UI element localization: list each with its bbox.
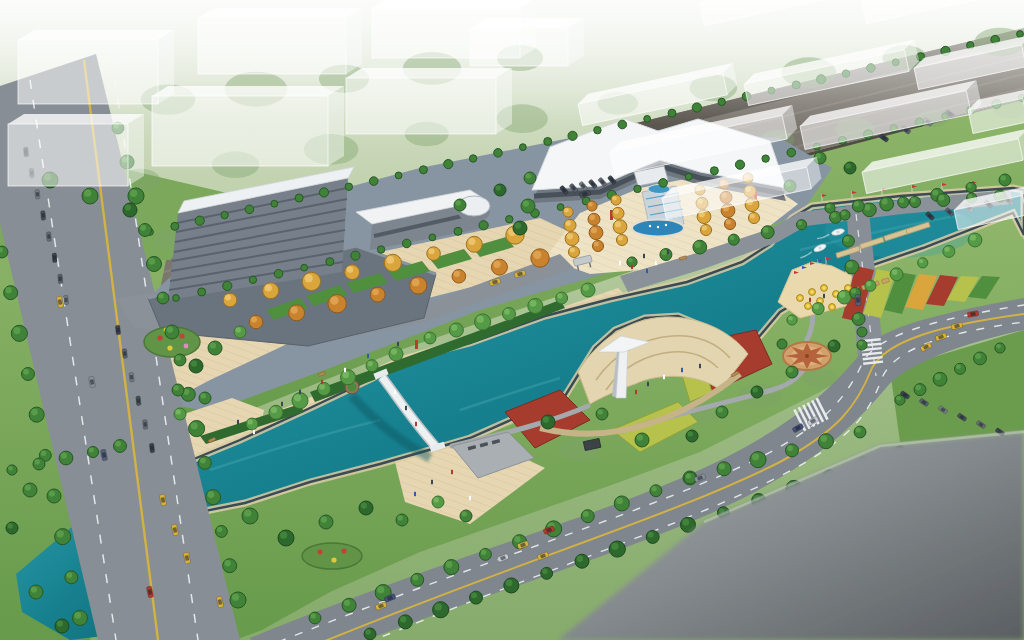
person — [823, 294, 825, 298]
tree — [326, 258, 334, 266]
person — [655, 261, 657, 265]
tree-highlight — [366, 629, 371, 634]
tree — [4, 286, 18, 300]
tree-highlight — [462, 511, 467, 516]
ghost-building — [18, 30, 174, 104]
tree — [581, 510, 594, 523]
tree — [596, 408, 608, 420]
tree-highlight — [944, 247, 949, 252]
car — [855, 294, 861, 305]
tree — [845, 260, 859, 274]
tree-highlight — [217, 527, 222, 532]
tree — [292, 393, 308, 409]
tree — [114, 440, 127, 453]
umbrella-pole — [831, 306, 833, 308]
ghost-roof — [8, 114, 144, 124]
tree — [735, 160, 744, 169]
tree — [309, 612, 321, 624]
tree-highlight — [841, 211, 846, 216]
tree-highlight — [967, 183, 972, 188]
tree-highlight — [718, 407, 723, 412]
tree-highlight — [57, 530, 64, 537]
tree-highlight — [391, 348, 397, 354]
tree — [424, 332, 436, 344]
tree-highlight — [426, 333, 431, 338]
tree — [234, 326, 246, 338]
tree — [568, 246, 579, 257]
car — [46, 232, 51, 242]
tree-highlight — [89, 448, 94, 453]
car — [35, 189, 40, 199]
tree-highlight — [140, 225, 146, 231]
tree — [503, 308, 516, 321]
tree-highlight — [557, 293, 562, 298]
tree — [263, 283, 279, 299]
tree — [6, 522, 18, 534]
person — [281, 402, 283, 406]
tree — [230, 592, 246, 608]
tree — [718, 98, 725, 105]
tree-highlight — [167, 326, 173, 332]
tree-highlight — [591, 227, 597, 233]
tree — [7, 465, 17, 475]
tree — [918, 258, 928, 268]
tree-highlight — [533, 251, 541, 259]
tree-highlight — [347, 266, 354, 273]
tree-highlight — [611, 543, 618, 550]
tree — [402, 239, 411, 248]
tree — [634, 185, 641, 192]
tree-highlight — [695, 242, 701, 248]
tree-highlight — [84, 190, 91, 197]
tree-highlight — [814, 304, 819, 309]
tree — [189, 359, 203, 373]
tree-highlight — [61, 452, 67, 458]
tree-highlight — [570, 248, 575, 253]
tree-highlight — [661, 250, 666, 255]
person — [414, 492, 416, 496]
tree-highlight — [454, 271, 460, 277]
person — [397, 342, 399, 346]
tree-highlight — [200, 458, 206, 464]
ghost-side — [346, 8, 362, 74]
tree — [87, 446, 98, 457]
tree — [506, 216, 513, 223]
tree — [692, 103, 701, 112]
tree — [565, 232, 579, 246]
tree — [11, 325, 27, 341]
tree — [449, 323, 463, 337]
tree — [818, 434, 833, 449]
tree — [974, 352, 987, 365]
tree-highlight — [881, 198, 887, 204]
tree-highlight — [456, 200, 461, 205]
tree — [398, 615, 412, 629]
tree — [460, 510, 472, 522]
ghost-building — [346, 68, 512, 134]
tree-highlight — [471, 592, 477, 598]
tree-highlight — [372, 289, 379, 296]
tree-highlight — [224, 560, 230, 566]
tree — [1017, 31, 1024, 38]
ghost-side — [328, 86, 344, 166]
person — [619, 261, 621, 265]
tree-highlight — [1001, 175, 1006, 180]
tree — [541, 415, 555, 429]
tree — [295, 194, 303, 202]
tree-highlight — [25, 484, 31, 490]
tree — [865, 280, 876, 291]
tree-highlight — [451, 324, 457, 330]
tree-highlight — [368, 361, 373, 366]
tree-highlight — [686, 473, 691, 478]
tree-highlight — [583, 284, 589, 290]
tree — [787, 148, 796, 157]
person — [299, 390, 301, 394]
tree-highlight — [618, 236, 623, 241]
ghost-front — [346, 78, 496, 134]
tree-highlight — [826, 204, 831, 209]
tree — [377, 246, 384, 253]
tree-highlight — [851, 289, 856, 294]
person — [431, 480, 433, 484]
tree-highlight — [854, 201, 859, 206]
ghost-building — [198, 8, 362, 74]
tree — [195, 216, 204, 225]
tree — [635, 433, 649, 447]
car-roof — [856, 297, 860, 303]
tree — [55, 529, 71, 545]
person — [253, 430, 255, 434]
tree — [854, 426, 866, 438]
tree — [369, 177, 378, 186]
ghost-front — [8, 124, 128, 186]
tree — [581, 283, 595, 297]
tree — [342, 598, 356, 612]
tree-highlight — [191, 422, 198, 429]
tree — [568, 131, 577, 140]
car-roof — [150, 446, 154, 451]
scene-canvas — [0, 0, 1024, 640]
tree-highlight — [251, 317, 257, 323]
tree — [761, 226, 774, 239]
tree-highlight — [481, 550, 486, 555]
tree-highlight — [968, 194, 973, 199]
tree — [909, 196, 920, 207]
tree-highlight — [468, 238, 475, 245]
tree-highlight — [846, 163, 851, 168]
tree-highlight — [896, 396, 901, 401]
aerial-rendering: Aerial architectural rendering of a rive… — [0, 0, 1024, 640]
tree-highlight — [148, 258, 155, 265]
car-roof — [59, 277, 62, 282]
tree — [55, 619, 69, 633]
tree-highlight — [752, 453, 759, 460]
tree — [650, 485, 662, 497]
tree-highlight — [398, 515, 403, 520]
tree-highlight — [321, 516, 327, 522]
tree — [716, 406, 728, 418]
tree — [174, 354, 186, 366]
tree — [857, 340, 867, 350]
tree — [345, 265, 360, 280]
tree-highlight — [435, 603, 442, 610]
tree — [933, 372, 947, 386]
person — [681, 368, 683, 372]
tree-highlight — [719, 463, 725, 469]
car-roof — [143, 422, 147, 427]
car — [149, 443, 154, 453]
ghost-front — [152, 96, 328, 166]
tree-highlight — [542, 569, 547, 574]
tree-highlight — [616, 497, 623, 504]
tree — [370, 287, 385, 302]
tree-highlight — [614, 209, 619, 214]
tree-highlight — [648, 532, 654, 538]
tree — [787, 315, 797, 325]
tree — [618, 120, 627, 129]
person — [237, 420, 239, 424]
tree — [519, 144, 526, 151]
tree — [301, 264, 308, 271]
tree-highlight — [830, 341, 835, 346]
tree — [857, 327, 867, 337]
car — [63, 295, 68, 305]
umbrella-pole — [835, 293, 837, 295]
tree-highlight — [583, 511, 589, 517]
ghost-front — [18, 40, 158, 104]
tree — [564, 219, 576, 231]
tree-highlight — [916, 385, 921, 390]
tree-highlight — [31, 409, 38, 416]
tree — [786, 444, 799, 457]
tree-highlight — [526, 173, 531, 178]
ghost-roof — [346, 68, 512, 78]
tree — [65, 571, 78, 584]
tree — [23, 483, 37, 497]
tree — [452, 269, 466, 283]
tree — [345, 183, 352, 190]
tree — [157, 292, 169, 304]
tree-highlight — [911, 198, 916, 203]
tree — [221, 211, 228, 218]
tree-highlight — [514, 536, 520, 542]
ghost-roof — [18, 30, 174, 40]
tree — [748, 212, 759, 223]
tree — [269, 405, 283, 419]
tree-highlight — [330, 296, 338, 304]
tree-highlight — [477, 316, 484, 323]
tree-highlight — [628, 258, 633, 263]
tree-highlight — [244, 510, 251, 517]
car — [41, 211, 46, 221]
car — [143, 420, 148, 430]
tree-highlight — [361, 502, 367, 508]
tree-highlight — [788, 367, 793, 372]
ghost-building — [470, 18, 584, 66]
tree — [589, 226, 603, 240]
tree — [410, 277, 427, 294]
ghost-building — [152, 86, 344, 166]
car-roof — [116, 328, 120, 333]
tree — [644, 115, 651, 122]
tree — [174, 408, 186, 420]
tree — [189, 421, 205, 437]
tree — [762, 155, 769, 162]
tree — [613, 220, 627, 234]
tree — [454, 227, 462, 235]
tree — [556, 292, 568, 304]
tree-highlight — [115, 441, 121, 447]
tree — [563, 207, 573, 217]
tree-highlight — [176, 409, 181, 414]
tree-highlight — [493, 261, 500, 268]
ghost-building — [8, 114, 144, 186]
car — [58, 274, 63, 284]
tree-highlight — [49, 490, 55, 496]
tree — [646, 530, 659, 543]
tree — [396, 514, 408, 526]
tree — [271, 200, 278, 207]
tree — [544, 137, 552, 145]
tree-highlight — [291, 306, 298, 313]
car-roof — [137, 398, 141, 403]
tree — [898, 197, 909, 208]
person — [635, 390, 637, 394]
person — [321, 380, 323, 384]
tree — [302, 272, 320, 290]
tree — [328, 295, 346, 313]
tree-highlight — [74, 612, 81, 619]
car-roof — [36, 192, 39, 197]
tree — [198, 288, 206, 296]
person — [647, 382, 649, 386]
tree-highlight — [5, 287, 11, 293]
tree — [587, 201, 597, 211]
tree — [728, 234, 739, 245]
tree — [223, 281, 232, 290]
person — [809, 298, 811, 302]
tree-highlight — [523, 200, 529, 206]
person — [415, 422, 417, 426]
person — [699, 364, 701, 368]
tree-highlight — [787, 445, 793, 451]
tree — [22, 368, 35, 381]
person — [631, 265, 633, 269]
tree-highlight — [935, 374, 941, 380]
tree-highlight — [125, 204, 131, 210]
tree-highlight — [319, 384, 325, 390]
tree — [524, 172, 536, 184]
tree — [700, 224, 711, 235]
tree-highlight — [496, 185, 501, 190]
tree-highlight — [788, 316, 793, 321]
tree — [128, 188, 144, 204]
tree — [966, 182, 976, 192]
person — [394, 390, 396, 394]
car-roof — [47, 234, 50, 239]
tree — [717, 462, 731, 476]
tree — [319, 188, 328, 197]
tree — [274, 269, 283, 278]
tree — [173, 295, 180, 302]
tree-highlight — [702, 226, 707, 231]
tree — [491, 259, 507, 275]
tree-highlight — [130, 190, 137, 197]
tree-highlight — [956, 364, 961, 369]
tree — [364, 628, 376, 640]
ghost-roof — [152, 86, 344, 96]
tree — [890, 268, 903, 281]
umbrella-pole — [819, 300, 821, 302]
umbrella-pole — [799, 297, 801, 299]
tree — [171, 222, 179, 230]
tree-highlight — [248, 419, 253, 424]
tree — [469, 155, 476, 162]
tree — [359, 501, 373, 515]
tree-highlight — [294, 394, 301, 401]
tree — [914, 384, 926, 396]
tree — [504, 578, 519, 593]
tree — [796, 220, 806, 230]
car-roof — [130, 375, 134, 380]
car — [129, 372, 134, 382]
tree — [611, 195, 621, 205]
tree-highlight — [446, 561, 453, 568]
tree — [319, 515, 333, 529]
tree-highlight — [858, 341, 863, 346]
tree — [840, 210, 850, 220]
tree-highlight — [590, 215, 595, 220]
tree-highlight — [566, 221, 571, 226]
tree — [724, 218, 735, 229]
tree-highlight — [210, 342, 216, 348]
tree-highlight — [577, 556, 583, 562]
tree-highlight — [191, 360, 197, 366]
tree-highlight — [386, 256, 394, 264]
tree — [198, 456, 211, 469]
tree-highlight — [8, 466, 13, 471]
tree — [139, 224, 152, 237]
tree-highlight — [820, 435, 827, 442]
tree-highlight — [588, 202, 593, 207]
tree — [249, 276, 256, 283]
tree-highlight — [637, 434, 643, 440]
tree-highlight — [839, 292, 845, 298]
tree — [494, 149, 503, 158]
car-roof — [64, 298, 67, 303]
person — [646, 269, 648, 273]
tree — [494, 184, 506, 196]
tree — [521, 199, 535, 213]
tree — [395, 172, 402, 179]
tree — [208, 341, 222, 355]
tree-highlight — [412, 279, 420, 287]
tree — [454, 199, 466, 211]
tree-highlight — [612, 196, 617, 201]
tree-highlight — [598, 409, 603, 414]
tree-highlight — [892, 269, 898, 275]
ghost-roof — [198, 8, 362, 18]
tree-highlight — [412, 575, 418, 581]
tree — [693, 240, 707, 254]
tree — [82, 188, 98, 204]
tree — [612, 207, 624, 219]
tree-highlight — [225, 295, 231, 301]
tree — [750, 452, 766, 468]
tree — [479, 221, 488, 230]
tree-highlight — [975, 353, 981, 359]
